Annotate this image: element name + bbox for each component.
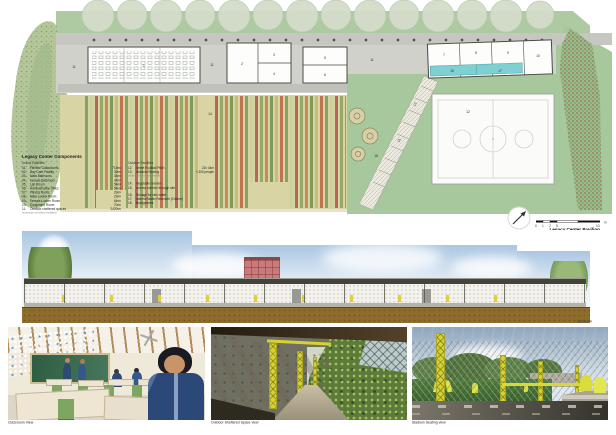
svg-text:18: 18 xyxy=(374,154,378,158)
north-arrow-icon xyxy=(508,207,530,229)
building-lockers xyxy=(427,40,552,78)
render-classroom xyxy=(8,327,205,420)
render-caption: Classroom View xyxy=(8,421,168,425)
legend-outdoor-heading: Outdoor Facilities xyxy=(128,162,214,166)
svg-text:12: 12 xyxy=(466,110,470,114)
girl-face xyxy=(164,355,185,374)
drain-strip xyxy=(412,405,608,408)
cloud xyxy=(322,243,442,273)
girl-jacket xyxy=(148,373,204,420)
legend-outdoor-column: Outdoor Facilities 12.Street Football Pi… xyxy=(128,162,214,206)
svg-text:3: 3 xyxy=(273,53,275,57)
svg-text:4: 4 xyxy=(273,72,275,76)
render-caption: Outdoor Sheltered Space view xyxy=(211,421,371,425)
yellow-truss-column xyxy=(269,343,277,409)
svg-text:16: 16 xyxy=(450,69,454,73)
legend-title: Legacy Center Components xyxy=(22,154,217,159)
seated-spectator xyxy=(580,375,592,391)
svg-text:11: 11 xyxy=(72,65,76,69)
presentation-board: 1 2 3 4 5 6 7 8 9 10 11 11 11 12 13 14 1… xyxy=(0,0,616,435)
svg-text:10: 10 xyxy=(536,54,540,58)
svg-text:14: 14 xyxy=(208,112,212,116)
svg-text:6: 6 xyxy=(324,73,326,77)
svg-text:9: 9 xyxy=(507,51,509,55)
section-elevation-drawing xyxy=(22,231,590,323)
football-pitch xyxy=(432,94,554,184)
legend-indoor-heading: Indoor Facilities xyxy=(22,162,121,166)
legend: Legacy Center Components Indoor Faciliti… xyxy=(22,154,217,219)
section-label: Section A xyxy=(502,320,592,324)
legend-outdoor-note: (extension of indoor facilities) xyxy=(128,175,214,179)
legend-row: 15.Access corridor through site xyxy=(128,186,214,190)
svg-text:1: 1 xyxy=(542,224,544,228)
svg-text:m: m xyxy=(604,221,607,225)
green-chair xyxy=(58,399,74,420)
render-caption: Stadium Seating view xyxy=(412,421,572,425)
svg-text:11: 11 xyxy=(210,63,214,67)
legend-row: 18.Biodigesters xyxy=(128,202,214,206)
cloud xyxy=(452,257,532,279)
plan-title: Legacy Center Pavilion xyxy=(549,227,600,230)
legend-indoor-column: Indoor Facilities 01.Flexible Classrooms… xyxy=(22,162,121,217)
svg-text:17: 17 xyxy=(498,69,502,73)
yellow-rail xyxy=(502,383,608,386)
svg-text:11: 11 xyxy=(370,58,374,62)
render-outdoor-space xyxy=(211,327,407,420)
svg-text:7: 7 xyxy=(443,53,445,57)
svg-text:2: 2 xyxy=(241,62,243,66)
structure-posts xyxy=(24,284,586,305)
seated-spectator xyxy=(594,377,606,393)
building-lab-office xyxy=(303,47,347,83)
walkway xyxy=(412,401,608,420)
svg-text:8: 8 xyxy=(475,51,477,55)
render-stadium xyxy=(412,327,608,420)
drain-strip xyxy=(412,413,608,415)
legend-indoor-note: (extension of indoor facilities) xyxy=(22,212,121,216)
svg-text:1: 1 xyxy=(143,64,145,68)
building-daycare xyxy=(227,43,291,83)
plan-title-block: Legacy Center Pavilion Ground Plan xyxy=(549,227,600,230)
svg-text:0: 0 xyxy=(535,224,537,228)
svg-text:5: 5 xyxy=(324,56,326,60)
